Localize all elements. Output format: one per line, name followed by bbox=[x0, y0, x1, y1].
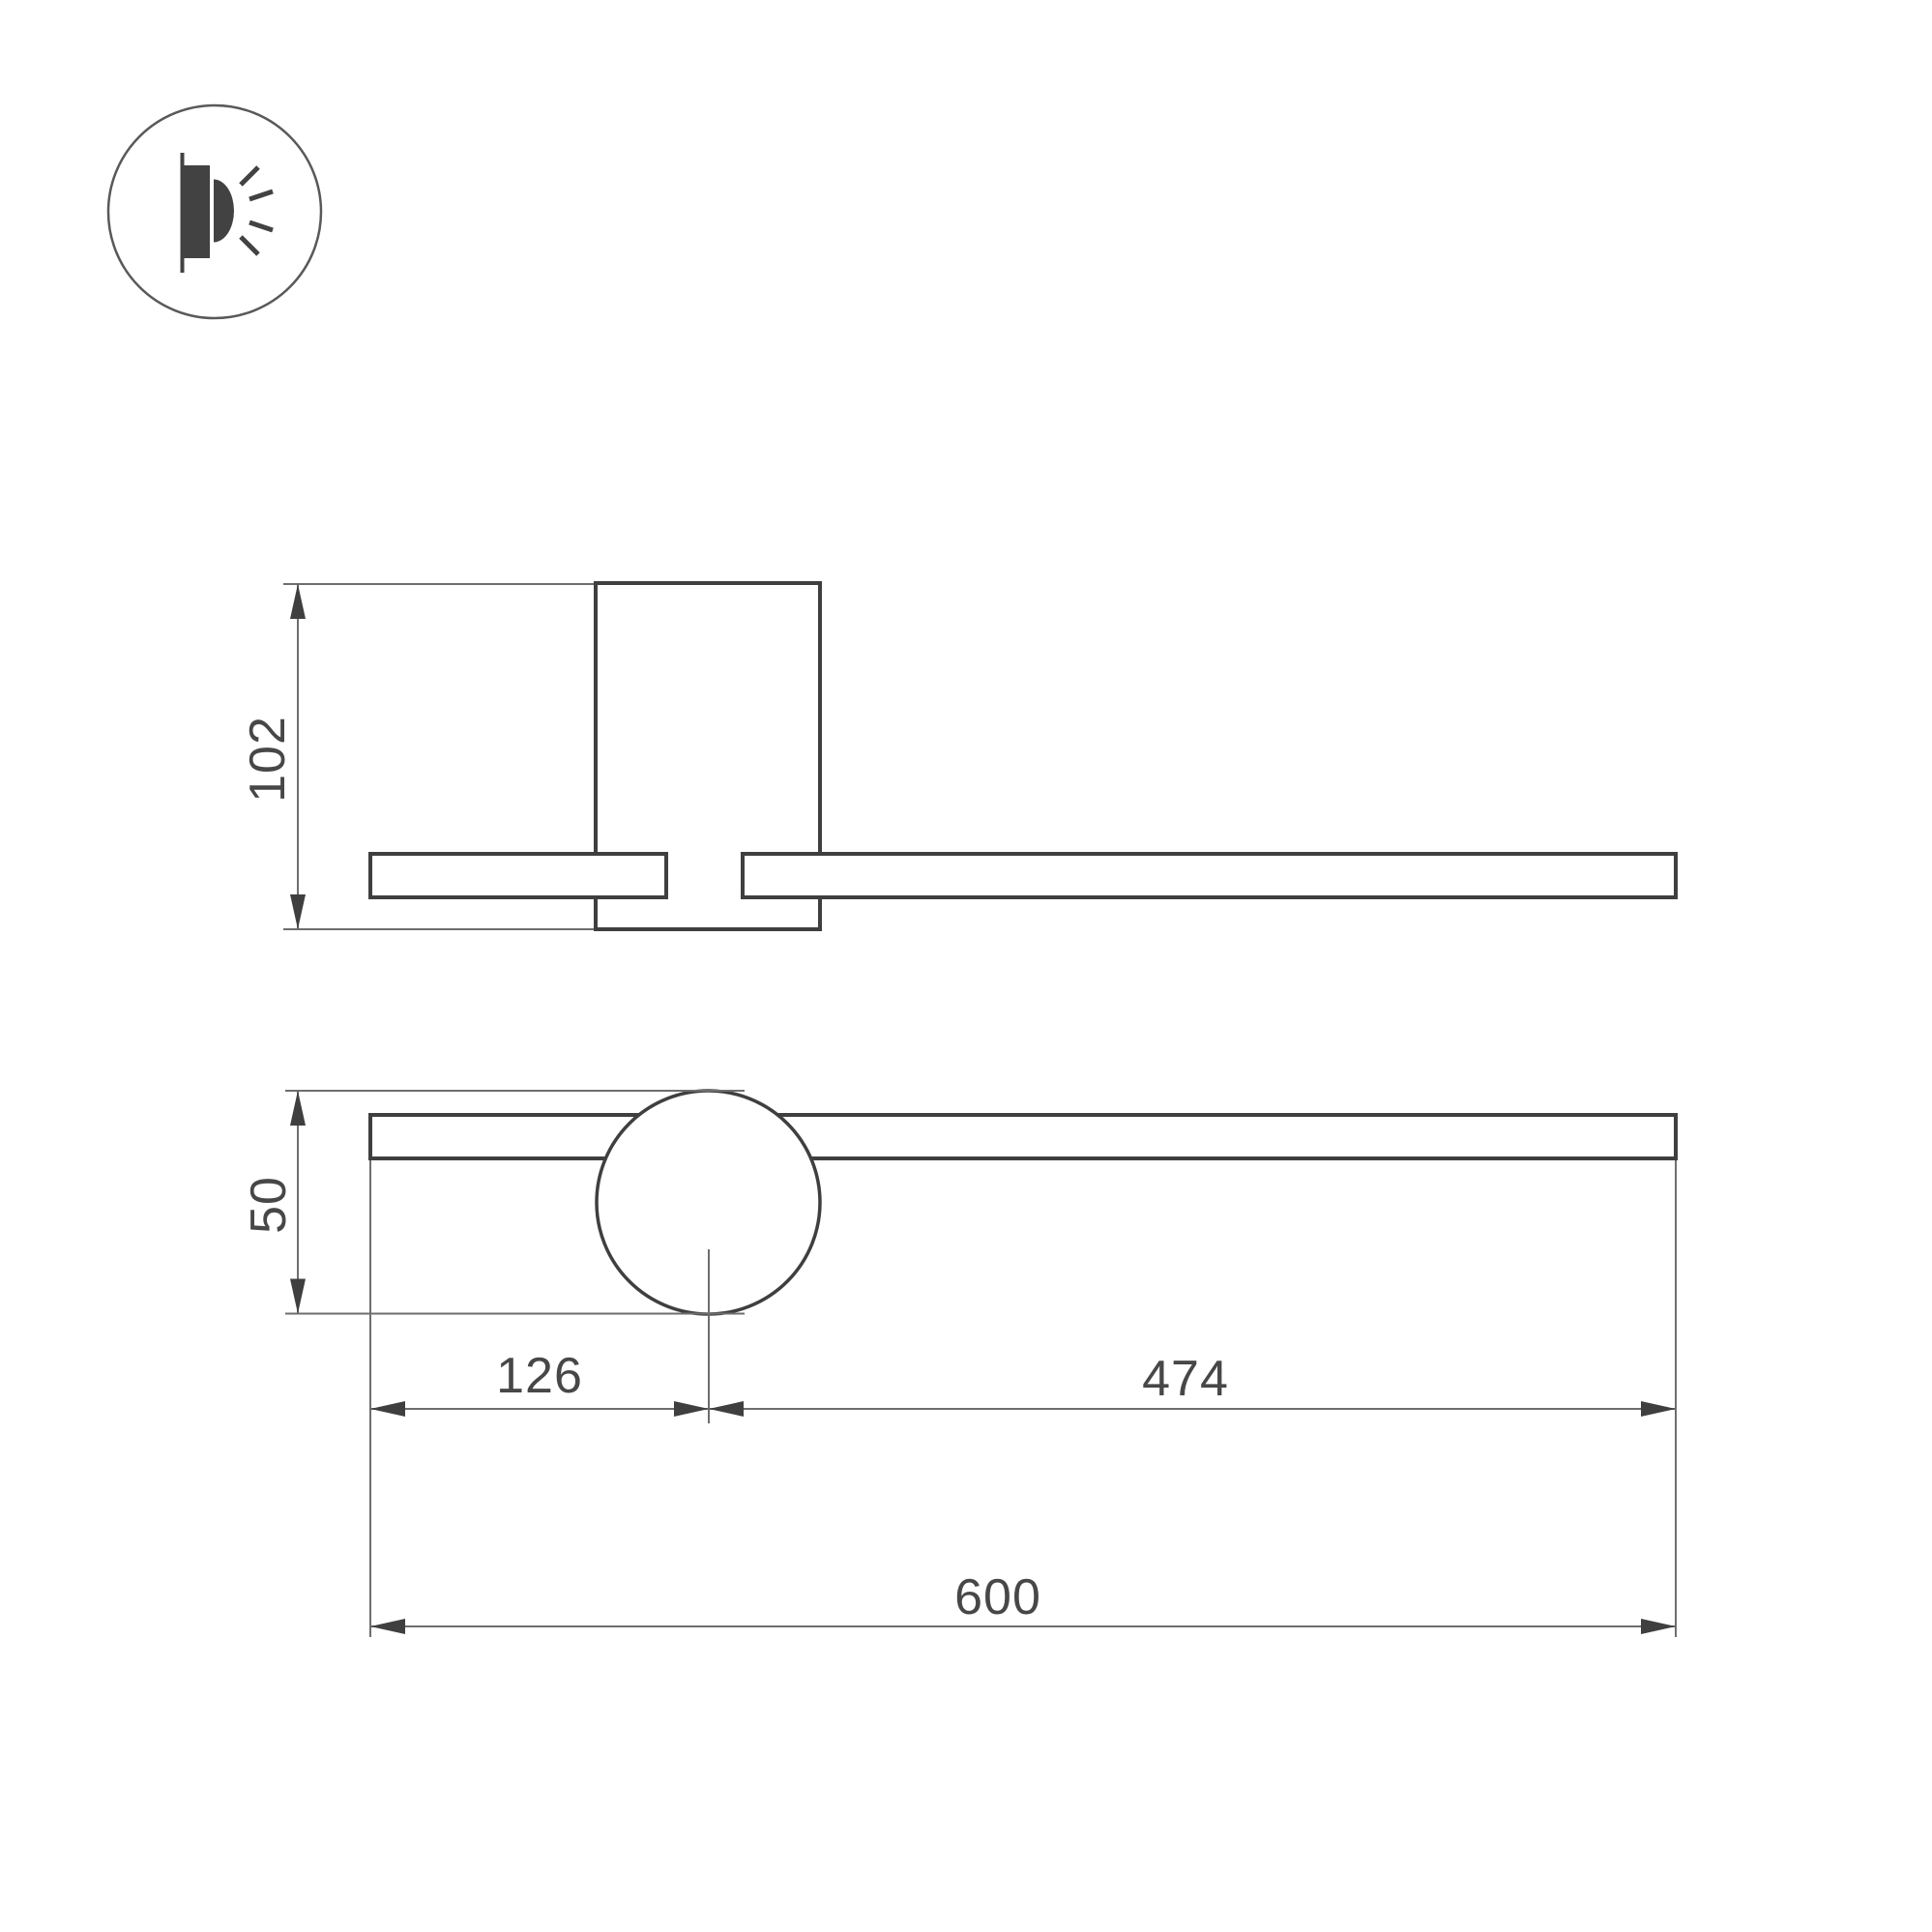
bar-right-segment-side bbox=[743, 854, 1676, 897]
arrow-down bbox=[290, 894, 306, 929]
dimension-drawing: 102 50 126 474 bbox=[0, 0, 1932, 1932]
dimension-600: 600 bbox=[370, 1569, 1676, 1634]
bar-front bbox=[370, 1115, 1676, 1158]
bar-left-segment-side bbox=[370, 854, 666, 897]
dimension-label-600: 600 bbox=[954, 1569, 1041, 1625]
side-view: 102 bbox=[240, 583, 1676, 929]
dimension-label-126: 126 bbox=[496, 1348, 583, 1404]
arrow-left bbox=[370, 1619, 405, 1634]
arrow-left bbox=[709, 1401, 744, 1417]
arrow-up bbox=[290, 1091, 306, 1126]
arrow-left bbox=[370, 1401, 405, 1417]
arrow-right bbox=[1641, 1619, 1676, 1634]
dimension-126-474: 126 474 bbox=[370, 1348, 1676, 1417]
dimension-label-102: 102 bbox=[240, 716, 296, 803]
dimension-label-474: 474 bbox=[1142, 1351, 1229, 1407]
lamp-body-icon bbox=[184, 165, 210, 258]
dimension-label-50: 50 bbox=[241, 1176, 297, 1234]
wall-light-icon bbox=[108, 105, 321, 318]
arrow-right bbox=[674, 1401, 709, 1417]
arrow-right bbox=[1641, 1401, 1676, 1417]
arrow-up bbox=[290, 584, 306, 619]
front-view: 50 126 474 600 bbox=[241, 1091, 1676, 1637]
arrow-down bbox=[290, 1279, 306, 1314]
